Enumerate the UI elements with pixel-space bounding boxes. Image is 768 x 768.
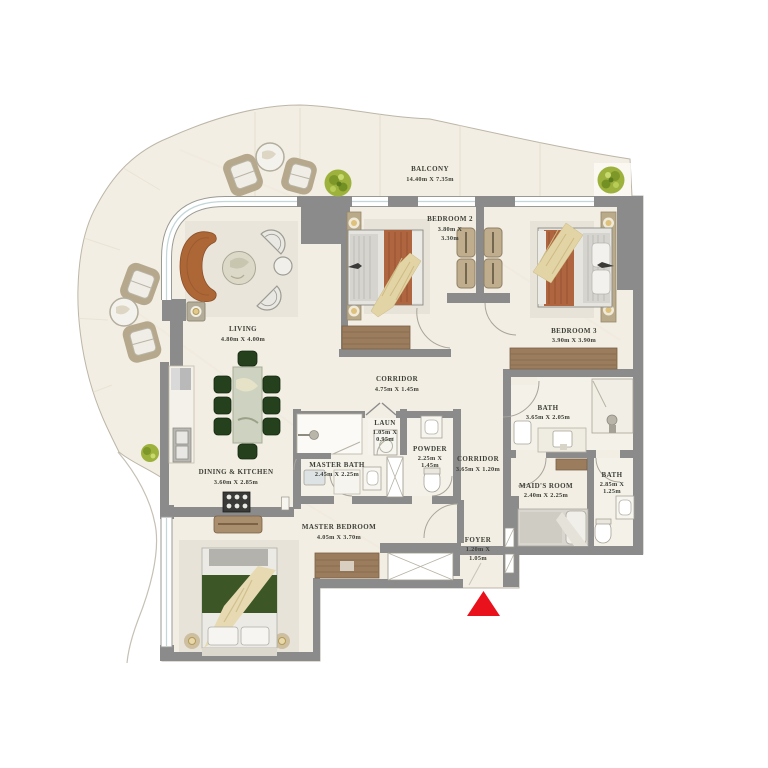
svg-text:2.40m X 2.25m: 2.40m X 2.25m bbox=[524, 492, 569, 499]
svg-text:BEDROOM 2: BEDROOM 2 bbox=[427, 215, 473, 223]
svg-text:MASTER BEDROOM: MASTER BEDROOM bbox=[302, 523, 376, 531]
svg-text:MASTER BATH: MASTER BATH bbox=[309, 461, 365, 469]
svg-text:3.65m X 2.05m: 3.65m X 2.05m bbox=[526, 414, 571, 421]
svg-text:CORRIDOR: CORRIDOR bbox=[457, 455, 500, 463]
svg-text:BATH: BATH bbox=[538, 404, 559, 412]
svg-text:3.65m X 1.20m: 3.65m X 1.20m bbox=[456, 466, 501, 473]
svg-text:FOYER: FOYER bbox=[465, 536, 492, 544]
svg-text:POWDER: POWDER bbox=[413, 445, 447, 453]
svg-text:14.40m X 7.35m: 14.40m X 7.35m bbox=[406, 176, 454, 183]
svg-text:1.45m: 1.45m bbox=[421, 462, 439, 469]
svg-text:3.60m X 2.85m: 3.60m X 2.85m bbox=[214, 479, 259, 486]
svg-text:1.05m: 1.05m bbox=[469, 555, 487, 562]
svg-text:3.80m X: 3.80m X bbox=[438, 226, 463, 233]
svg-text:BATH: BATH bbox=[602, 471, 623, 479]
svg-text:2.25m X: 2.25m X bbox=[418, 455, 443, 462]
svg-text:3.30m: 3.30m bbox=[441, 235, 459, 242]
svg-text:CORRIDOR: CORRIDOR bbox=[376, 375, 419, 383]
svg-text:4.05m X 3.70m: 4.05m X 3.70m bbox=[317, 534, 362, 541]
svg-text:2.45m X 2.25m: 2.45m X 2.25m bbox=[315, 471, 360, 478]
svg-text:MAID'S ROOM: MAID'S ROOM bbox=[519, 482, 573, 490]
svg-text:DINING & KITCHEN: DINING & KITCHEN bbox=[199, 468, 274, 476]
svg-text:0.95m: 0.95m bbox=[376, 436, 394, 443]
svg-text:BEDROOM 3: BEDROOM 3 bbox=[551, 327, 597, 335]
svg-text:1.25m: 1.25m bbox=[603, 488, 621, 495]
svg-text:3.90m X 3.90m: 3.90m X 3.90m bbox=[552, 337, 597, 344]
svg-text:1.05m X: 1.05m X bbox=[373, 429, 398, 436]
svg-text:4.75m X 1.45m: 4.75m X 1.45m bbox=[375, 386, 420, 393]
svg-text:4.80m X 4.00m: 4.80m X 4.00m bbox=[221, 336, 266, 343]
svg-text:2.85m X: 2.85m X bbox=[600, 481, 625, 488]
svg-text:LAUN: LAUN bbox=[374, 419, 395, 427]
svg-text:1.20m X: 1.20m X bbox=[466, 546, 491, 553]
svg-text:BALCONY: BALCONY bbox=[411, 165, 449, 173]
svg-text:LIVING: LIVING bbox=[229, 325, 257, 333]
